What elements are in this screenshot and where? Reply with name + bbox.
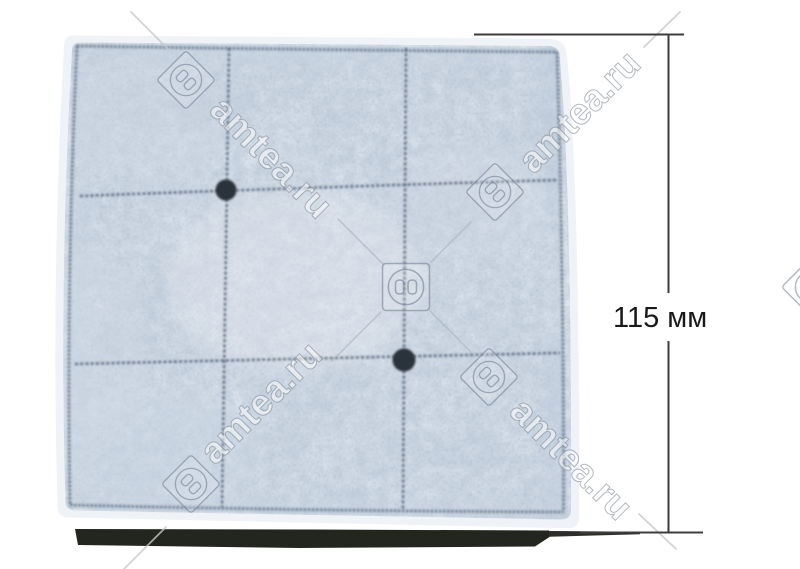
svg-text:115 мм: 115 мм (613, 302, 707, 334)
